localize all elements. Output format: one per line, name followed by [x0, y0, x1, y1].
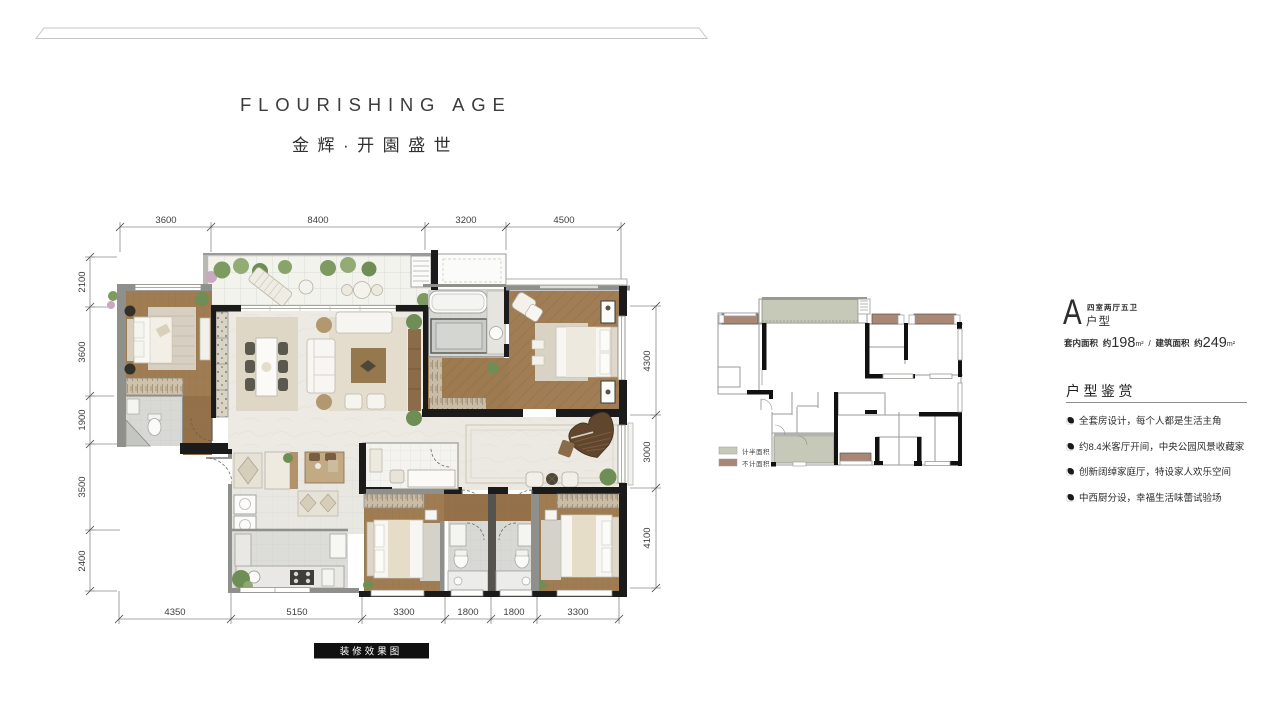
svg-text:8400: 8400 [307, 215, 328, 226]
svg-text:5150: 5150 [286, 607, 307, 618]
svg-text:1900: 1900 [77, 409, 88, 430]
svg-text:4500: 4500 [553, 215, 574, 226]
svg-text:1800: 1800 [503, 607, 524, 618]
svg-text:2100: 2100 [77, 271, 88, 292]
svg-text:4100: 4100 [642, 527, 653, 548]
svg-text:2400: 2400 [77, 550, 88, 571]
svg-text:3200: 3200 [455, 215, 476, 226]
svg-text:4300: 4300 [642, 350, 653, 371]
svg-text:计半面积: 计半面积 [742, 447, 770, 456]
svg-text:1800: 1800 [457, 607, 478, 618]
svg-text:4350: 4350 [164, 607, 185, 618]
svg-text:3000: 3000 [642, 441, 653, 462]
svg-text:3600: 3600 [155, 215, 176, 226]
svg-text:3300: 3300 [393, 607, 414, 618]
svg-text:装修效果图: 装修效果图 [340, 646, 403, 658]
svg-text:不计面积: 不计面积 [742, 459, 770, 468]
svg-text:3600: 3600 [77, 341, 88, 362]
svg-text:3300: 3300 [567, 607, 588, 618]
svg-text:3500: 3500 [77, 476, 88, 497]
